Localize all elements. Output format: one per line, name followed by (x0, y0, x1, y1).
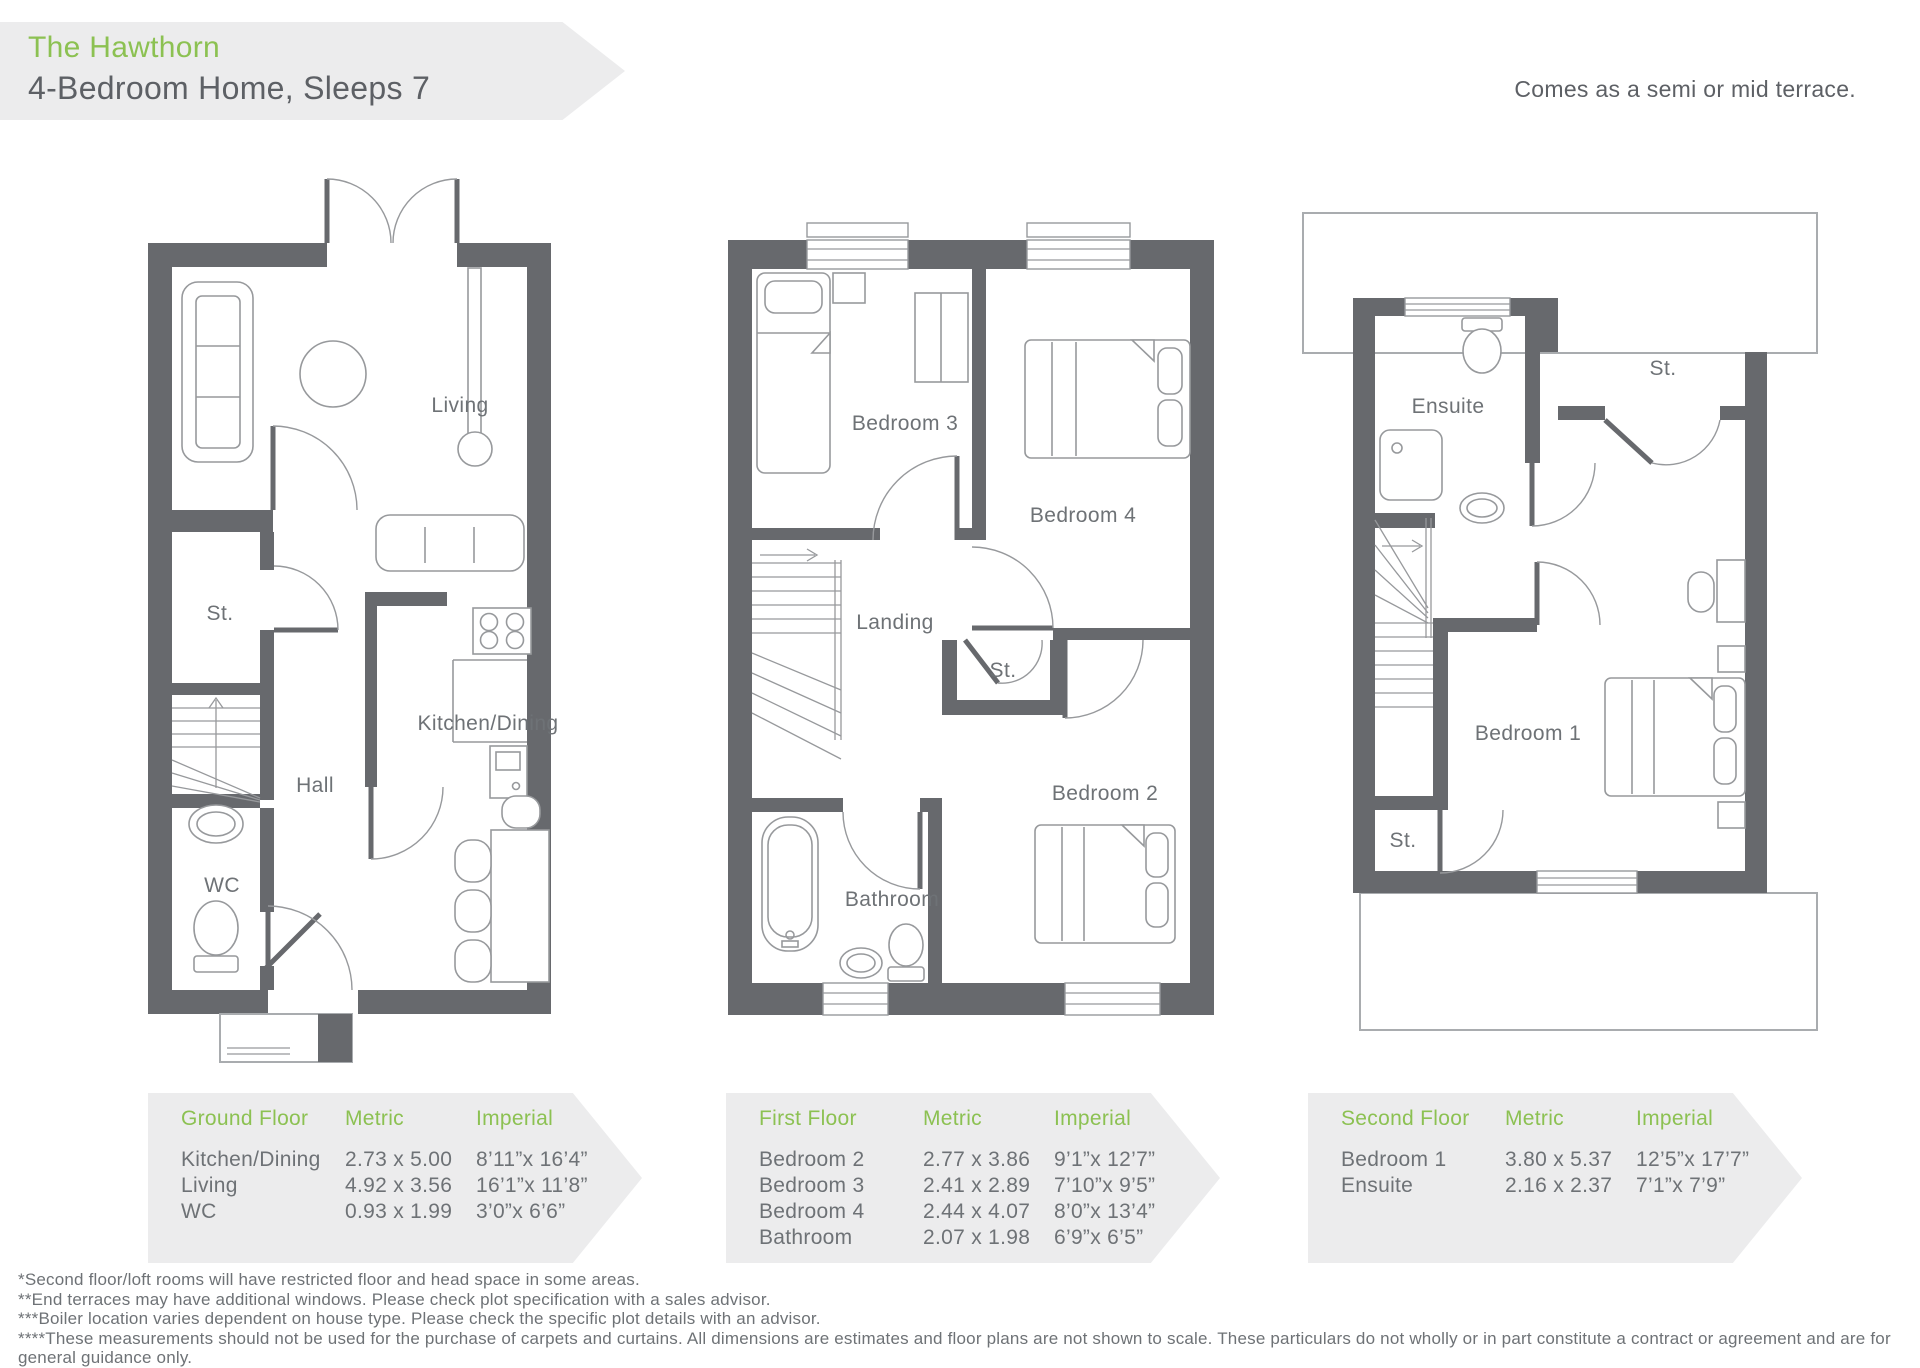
double-bed-2 (1035, 825, 1175, 943)
room-label-storage: St. (207, 602, 234, 625)
hob (473, 608, 531, 654)
imperial-header: Imperial (1636, 1106, 1802, 1132)
metric-header: Metric (923, 1106, 1054, 1132)
room-label-bedroom4: Bedroom 4 (1030, 504, 1136, 527)
terrace-note: Comes as a semi or mid terrace. (1514, 76, 1856, 103)
title-banner: The Hawthorn 4-Bedroom Home, Sleeps 7 (0, 22, 625, 120)
second-doors (1440, 420, 1720, 873)
room-label-hall: Hall (296, 774, 334, 797)
double-bed-1 (1605, 678, 1745, 796)
table-header: Second Floor Metric Imperial (1308, 1106, 1802, 1132)
first-floor-plan: Bedroom 3 Bedroom 4 Landing St. Bathroom… (720, 185, 1220, 1045)
footnote: **End terraces may have additional windo… (18, 1290, 1920, 1310)
table-row: Bedroom 13.80 x 5.3712’5”x 17’7” (1308, 1147, 1802, 1173)
desk-chair (1688, 572, 1714, 612)
ground-doors (266, 179, 457, 990)
room-label-storage-bottom: St. (1390, 829, 1417, 852)
single-bed (757, 273, 830, 473)
ensuite-toilet (1463, 329, 1501, 373)
dining-chair (455, 840, 491, 882)
table-row: Bedroom 42.44 x 4.078’0”x 13’4” (726, 1199, 1220, 1225)
second-floor-table: Second Floor Metric Imperial Bedroom 13.… (1308, 1093, 1802, 1263)
metric-header: Metric (345, 1106, 476, 1132)
imperial-header: Imperial (1054, 1106, 1220, 1132)
ground-floor-plan: Living St. Hall WC Kitchen/Dining (118, 150, 573, 1065)
toilet (889, 924, 923, 966)
side-table (458, 432, 492, 466)
table-row: Bathroom2.07 x 1.986’9”x 6’5” (726, 1225, 1220, 1251)
room-label-wc: WC (204, 874, 240, 897)
sofa (182, 282, 253, 462)
table-title: Ground Floor (181, 1106, 345, 1132)
dining-chair (455, 890, 491, 932)
table-row: WC0.93 x 1.993’0”x 6’6” (148, 1199, 642, 1225)
floorplan-brochure-page: { "header": { "title": "The Hawthorn", "… (0, 0, 1920, 1358)
dining-table (491, 830, 549, 982)
porch-wall (318, 1014, 352, 1062)
desk (1717, 560, 1745, 622)
double-bed (1025, 340, 1190, 458)
table-row: Bedroom 32.41 x 2.897’10”x 9’5” (726, 1173, 1220, 1199)
table-row: Bedroom 22.77 x 3.869’1”x 12’7” (726, 1147, 1220, 1173)
room-label-living: Living (431, 394, 488, 417)
table-row: Kitchen/Dining2.73 x 5.008’11”x 16’4” (148, 1147, 642, 1173)
loft-area-top (1303, 213, 1817, 353)
first-floor-table: First Floor Metric Imperial Bedroom 22.7… (726, 1093, 1220, 1263)
first-stairs (752, 549, 841, 759)
tv-unit (468, 268, 481, 454)
room-label-bathroom: Bathroom (845, 888, 939, 911)
metric-header: Metric (1505, 1106, 1636, 1132)
bedside-table (1718, 646, 1745, 672)
table-header: First Floor Metric Imperial (726, 1106, 1220, 1132)
bedside-table (1718, 802, 1745, 828)
sofa-2 (376, 515, 524, 571)
footnote: ***Boiler location varies dependent on h… (18, 1309, 1920, 1329)
plot-subtitle: 4-Bedroom Home, Sleeps 7 (28, 70, 430, 107)
room-label-kitchen-dining: Kitchen/Dining (417, 712, 558, 735)
round-table (300, 341, 366, 407)
table-row: Living4.92 x 3.5616’1”x 11’8” (148, 1173, 642, 1199)
room-label-bedroom2: Bedroom 2 (1052, 782, 1158, 805)
room-label-bedroom1: Bedroom 1 (1475, 722, 1581, 745)
dining-chair (502, 796, 540, 828)
room-label-ensuite: Ensuite (1412, 395, 1485, 418)
second-floor-plan: Ensuite St. Bedroom 1 St. (1300, 168, 1860, 1048)
imperial-header: Imperial (476, 1106, 642, 1132)
bedside-table (833, 273, 865, 303)
room-label-storage: St. (990, 659, 1017, 682)
table-title: First Floor (759, 1106, 923, 1132)
ground-floor-table: Ground Floor Metric Imperial Kitchen/Din… (148, 1093, 642, 1263)
table-title: Second Floor (1341, 1106, 1505, 1132)
loft-area-bottom (1360, 893, 1817, 1030)
shower (1380, 430, 1442, 500)
footnote: *Second floor/loft rooms will have restr… (18, 1270, 1920, 1290)
plot-name: The Hawthorn (28, 31, 220, 65)
table-row: Ensuite2.16 x 2.377’1”x 7’9” (1308, 1173, 1802, 1199)
second-stairs (1375, 518, 1433, 707)
dining-chair (455, 940, 491, 982)
ground-stairs (172, 698, 260, 802)
wc-toilet (194, 901, 238, 955)
footnote: ****These measurements should not be use… (18, 1329, 1920, 1368)
footnotes: *Second floor/loft rooms will have restr… (18, 1270, 1920, 1368)
table-header: Ground Floor Metric Imperial (148, 1106, 642, 1132)
room-label-landing: Landing (856, 611, 934, 634)
room-label-storage-top: St. (1650, 357, 1677, 380)
room-label-bedroom3: Bedroom 3 (852, 412, 958, 435)
